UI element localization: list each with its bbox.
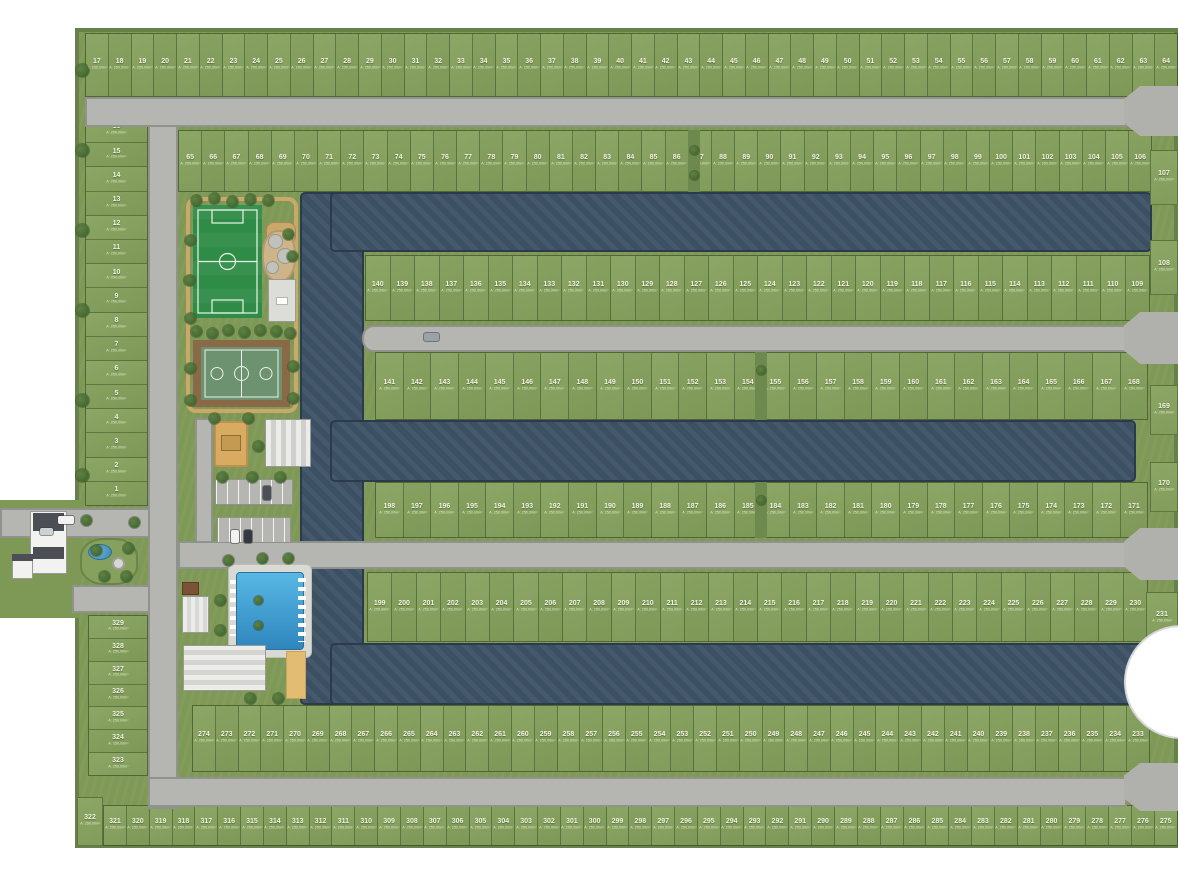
lot-area-label: A: 250,00m² — [513, 739, 533, 743]
lot-area-label: A: 250,00m² — [402, 826, 422, 830]
lot-number: 63 — [1139, 58, 1147, 66]
lot-area-label: A: 250,00m² — [223, 66, 243, 70]
lot-area-label: A: 250,00m² — [630, 826, 650, 830]
lot-area-label: A: 250,00m² — [516, 608, 536, 612]
lot-area-label: A: 250,00m² — [399, 739, 419, 743]
lot-area-label: A: 250,00m² — [392, 289, 412, 293]
lot-area-label: A: 250,00m² — [633, 66, 653, 70]
lot-area-label: A: 250,00m² — [923, 739, 943, 743]
lot-area-label: A: 250,00m² — [1013, 387, 1033, 391]
lot-number: 3 — [115, 438, 119, 446]
lot-number: 73 — [372, 154, 380, 162]
tree-icon — [76, 64, 89, 77]
tree-icon — [757, 366, 766, 375]
lot-area-label: A: 250,00m² — [1028, 608, 1048, 612]
lot-19: 19A: 250,00m² — [132, 34, 155, 96]
lot-number: 272 — [244, 731, 256, 739]
lot-area-label: A: 250,00m² — [353, 739, 373, 743]
lot-306: 306A: 250,00m² — [447, 806, 470, 845]
lot-17: 17A: 250,00m² — [86, 34, 109, 96]
lot-198: 198A: 250,00m² — [376, 483, 404, 537]
lot-area-label: A: 250,00m² — [695, 739, 715, 743]
tree-icon — [209, 193, 220, 204]
lot-number: 43 — [684, 58, 692, 66]
entrance-road-in — [0, 508, 150, 538]
lot-18: 18A: 250,00m² — [109, 34, 132, 96]
lot-66: 66A: 250,00m² — [202, 131, 225, 191]
lot-area-label: A: 250,00m² — [980, 289, 1000, 293]
lot-124: 124A: 250,00m² — [758, 256, 783, 320]
lot-285: 285A: 250,00m² — [926, 806, 949, 845]
lot-number: 143 — [439, 379, 451, 387]
lot-294: 294A: 250,00m² — [721, 806, 744, 845]
lot-167: 167A: 250,00m² — [1093, 353, 1121, 419]
lot-number: 184 — [770, 503, 782, 511]
lot-area-label: A: 250,00m² — [80, 822, 100, 826]
tree-icon — [129, 517, 140, 528]
lot-area-label: A: 250,00m² — [564, 66, 584, 70]
lot-110: 110A: 250,00m² — [1101, 256, 1126, 320]
lot-4: 4A: 250,00m² — [86, 409, 147, 433]
lot-88: 88A: 250,00m² — [712, 131, 735, 191]
lot-122: 122A: 250,00m² — [807, 256, 832, 320]
lot-281: 281A: 250,00m² — [1018, 806, 1041, 845]
lot-number: 148 — [576, 379, 588, 387]
lot-304: 304A: 250,00m² — [492, 806, 515, 845]
lot-number: 291 — [794, 818, 806, 826]
lot-area-label: A: 250,00m² — [356, 826, 376, 830]
lot-93: 93A: 250,00m² — [828, 131, 851, 191]
lot-number: 215 — [764, 600, 776, 608]
lot-number: 86 — [673, 154, 681, 162]
lot-number: 270 — [289, 731, 301, 739]
tree-icon — [76, 394, 89, 407]
lot-area-label: A: 250,00m² — [1019, 826, 1039, 830]
lot-area-label: A: 250,00m² — [906, 66, 926, 70]
lot-number: 263 — [449, 731, 461, 739]
lot-area-label: A: 250,00m² — [1084, 162, 1104, 166]
lot-271: 271A: 250,00m² — [261, 706, 284, 771]
lot-number: 216 — [788, 600, 800, 608]
lot-number: 285 — [931, 818, 943, 826]
bottom-row: 321A: 250,00m²320A: 250,00m²319A: 250,00… — [103, 805, 1178, 846]
lot-number: 13 — [113, 196, 121, 204]
lot-number: 65 — [186, 154, 194, 162]
lot-109: 109A: 250,00m² — [1126, 256, 1150, 320]
lot-number: 302 — [543, 818, 555, 826]
lot-number: 298 — [634, 818, 646, 826]
lot-number: 114 — [1009, 281, 1020, 289]
lot-317: 317A: 250,00m² — [195, 806, 218, 845]
lot-number: 224 — [983, 600, 995, 608]
lot-number: 128 — [666, 281, 678, 289]
lot-71: 71A: 250,00m² — [318, 131, 341, 191]
lot-area-label: A: 250,00m² — [968, 739, 988, 743]
lot-number: 195 — [466, 503, 478, 511]
lot-area-label: A: 250,00m² — [443, 608, 463, 612]
lot-area-label: A: 250,00m² — [1078, 289, 1098, 293]
lot-area-label: A: 250,00m² — [836, 826, 856, 830]
lot-area-label: A: 250,00m² — [108, 650, 128, 654]
lot-area-label: A: 250,00m² — [564, 289, 584, 293]
lot-number: 315 — [246, 818, 258, 826]
lot-number: 260 — [517, 731, 529, 739]
tree-icon — [690, 171, 699, 180]
lot-187: 187A: 250,00m² — [679, 483, 707, 537]
lot-20: 20A: 250,00m² — [154, 34, 177, 96]
lot-314: 314A: 250,00m² — [264, 806, 287, 845]
car-2 — [40, 528, 53, 535]
lot-191: 191A: 250,00m² — [569, 483, 597, 537]
tree-icon — [254, 621, 263, 630]
lot-area-label: A: 250,00m² — [638, 608, 658, 612]
lot-area-label: A: 250,00m² — [219, 826, 239, 830]
lot-number: 268 — [335, 731, 347, 739]
lot-area-label: A: 250,00m² — [470, 826, 490, 830]
lot-number: 56 — [980, 58, 988, 66]
lot-13: 13A: 250,00m² — [86, 192, 147, 216]
lot-158: 158A: 250,00m² — [845, 353, 873, 419]
lot-number: 133 — [543, 281, 555, 289]
lot-area-label: A: 250,00m² — [310, 826, 330, 830]
lot-number: 172 — [1100, 503, 1112, 511]
lot-area-label: A: 250,00m² — [613, 289, 633, 293]
lot-area-label: A: 250,00m² — [662, 289, 682, 293]
lot-170: 170A: 250,00m² — [1150, 462, 1178, 512]
lot-number: 296 — [680, 818, 692, 826]
lot-116: 116A: 250,00m² — [954, 256, 979, 320]
lot-number: 278 — [1091, 818, 1103, 826]
lot-number: 139 — [396, 281, 408, 289]
lot-area-label: A: 250,00m² — [308, 739, 328, 743]
lot-number: 85 — [650, 154, 658, 162]
lot-number: 25 — [275, 58, 283, 66]
lot-number: 38 — [571, 58, 579, 66]
lot-39: 39A: 250,00m² — [587, 34, 610, 96]
tree-icon — [76, 469, 89, 482]
lot-number: 140 — [372, 281, 384, 289]
lot-number: 6 — [115, 365, 119, 373]
culdesac-4 — [1124, 763, 1178, 811]
lot-36: 36A: 250,00m² — [518, 34, 541, 96]
lot-area-label: A: 250,00m² — [106, 470, 126, 474]
lot-area-label: A: 250,00m² — [269, 66, 289, 70]
plaza-pad — [268, 234, 283, 249]
lot-area-label: A: 250,00m² — [106, 180, 126, 184]
lot-number: 177 — [963, 503, 975, 511]
lot-area-label: A: 250,00m² — [722, 826, 742, 830]
lot-number: 318 — [178, 818, 190, 826]
lot-266: 266A: 250,00m² — [375, 706, 398, 771]
lot-area-label: A: 250,00m² — [852, 162, 872, 166]
lot-number: 46 — [753, 58, 761, 66]
lot-area-label: A: 250,00m² — [793, 511, 813, 515]
lot-area-label: A: 250,00m² — [857, 608, 877, 612]
lot-number: 281 — [1023, 818, 1035, 826]
lot-134: 134A: 250,00m² — [513, 256, 538, 320]
lot-321: 321A: 250,00m² — [104, 806, 127, 845]
lot-area-label: A: 250,00m² — [1037, 739, 1057, 743]
lot-area-label: A: 250,00m² — [958, 387, 978, 391]
lot-number: 95 — [881, 154, 889, 162]
lot-181: 181A: 250,00m² — [845, 483, 873, 537]
tree-icon — [76, 304, 89, 317]
street-3 — [178, 541, 1127, 569]
lot-area-label: A: 250,00m² — [504, 162, 524, 166]
tree-icon — [239, 327, 250, 338]
lot-210: 210A: 250,00m² — [636, 573, 660, 641]
sand-volleyball-court — [286, 651, 306, 699]
lot-252: 252A: 250,00m² — [694, 706, 717, 771]
lot-number: 183 — [797, 503, 809, 511]
lot-number: 238 — [1018, 731, 1030, 739]
lot-200: 200A: 250,00m² — [392, 573, 416, 641]
tree-icon — [263, 195, 274, 206]
tree-icon — [283, 229, 294, 240]
lot-number: 117 — [936, 281, 947, 289]
lot-area-label: A: 250,00m² — [833, 608, 853, 612]
tree-icon — [690, 146, 699, 155]
lot-area-label: A: 250,00m² — [1154, 411, 1174, 415]
lot-256: 256A: 250,00m² — [603, 706, 626, 771]
lot-number: 239 — [995, 731, 1007, 739]
lot-area-label: A: 250,00m² — [813, 826, 833, 830]
lot-272: 272A: 250,00m² — [239, 706, 262, 771]
lot-area-label: A: 250,00m² — [291, 66, 311, 70]
lot-area-label: A: 250,00m² — [945, 162, 965, 166]
lot-area-label: A: 250,00m² — [746, 66, 766, 70]
lot-area-label: A: 250,00m² — [1156, 66, 1176, 70]
lot-area-label: A: 250,00m² — [741, 739, 761, 743]
lot-number: 54 — [935, 58, 943, 66]
lot-242: 242A: 250,00m² — [922, 706, 945, 771]
lot-32: 32A: 250,00m² — [427, 34, 450, 96]
lot-number: 20 — [161, 58, 169, 66]
lot-area-label: A: 250,00m² — [370, 608, 390, 612]
lot-41: 41A: 250,00m² — [632, 34, 655, 96]
lot-number: 137 — [445, 281, 457, 289]
lot-100: 100A: 250,00m² — [990, 131, 1013, 191]
terrace-pads — [182, 582, 199, 595]
lot-138: 138A: 250,00m² — [415, 256, 440, 320]
tree-icon — [287, 251, 298, 262]
lot-area-label: A: 250,00m² — [600, 387, 620, 391]
lot-228: 228A: 250,00m² — [1075, 573, 1099, 641]
lot-number: 84 — [626, 154, 634, 162]
lot-number: 243 — [904, 731, 916, 739]
lot-14: 14A: 250,00m² — [86, 167, 147, 191]
lot-area-label: A: 250,00m² — [1014, 739, 1034, 743]
lot-area-label: A: 250,00m² — [491, 608, 511, 612]
lot-number: 320 — [132, 818, 144, 826]
green-divider-3 — [755, 482, 767, 538]
lot-area-label: A: 250,00m² — [379, 387, 399, 391]
lot-area-label: A: 250,00m² — [108, 696, 128, 700]
car-6 — [424, 333, 439, 341]
lot-area-label: A: 250,00m² — [517, 511, 537, 515]
car-1 — [58, 516, 74, 524]
lot-76: 76A: 250,00m² — [434, 131, 457, 191]
lot-area-label: A: 250,00m² — [407, 511, 427, 515]
lot-number: 287 — [886, 818, 898, 826]
lot-area-label: A: 250,00m² — [203, 162, 223, 166]
lot-number: 319 — [155, 818, 167, 826]
lot-253: 253A: 250,00m² — [671, 706, 694, 771]
lot-229: 229A: 250,00m² — [1099, 573, 1123, 641]
lot-area-label: A: 250,00m² — [379, 511, 399, 515]
lot-number: 256 — [608, 731, 620, 739]
lot-number: 275 — [1160, 818, 1172, 826]
lot-264: 264A: 250,00m² — [421, 706, 444, 771]
car-3 — [231, 530, 239, 543]
lot-316: 316A: 250,00m² — [218, 806, 241, 845]
lot-89: 89A: 250,00m² — [735, 131, 758, 191]
lot-number: 149 — [604, 379, 616, 387]
lot-10: 10A: 250,00m² — [86, 264, 147, 288]
lot-area-label: A: 250,00m² — [883, 66, 903, 70]
tree-icon — [245, 693, 256, 704]
lot-156: 156A: 250,00m² — [790, 353, 818, 419]
lot-area-label: A: 250,00m² — [683, 511, 703, 515]
tree-icon — [253, 441, 264, 452]
lot-number: 76 — [441, 154, 449, 162]
swimming-pool — [236, 572, 304, 650]
tree-icon — [223, 325, 234, 336]
lot-315: 315A: 250,00m² — [241, 806, 264, 845]
lot-area-label: A: 250,00m² — [1013, 511, 1033, 515]
lot-151: 151A: 250,00m² — [652, 353, 680, 419]
lot-number: 282 — [1000, 818, 1012, 826]
lot-79: 79A: 250,00m² — [503, 131, 526, 191]
lot-165: 165A: 250,00m² — [1038, 353, 1066, 419]
lot-area-label: A: 250,00m² — [106, 131, 126, 135]
lot-number: 50 — [844, 58, 852, 66]
lot-number: 153 — [714, 379, 726, 387]
lot-35: 35A: 250,00m² — [496, 34, 519, 96]
lot-312: 312A: 250,00m² — [310, 806, 333, 845]
lot-144: 144A: 250,00m² — [459, 353, 487, 419]
lot-number: 77 — [464, 154, 472, 162]
lot-area-label: A: 250,00m² — [1128, 739, 1148, 743]
lot-number: 106 — [1134, 154, 1146, 162]
lot-216: 216A: 250,00m² — [782, 573, 806, 641]
lot-number: 70 — [302, 154, 310, 162]
lot-number: 236 — [1064, 731, 1076, 739]
lot-137: 137A: 250,00m² — [440, 256, 465, 320]
lot-area-label: A: 250,00m² — [489, 511, 509, 515]
lot-number: 189 — [632, 503, 644, 511]
lot-area-label: A: 250,00m² — [1076, 608, 1096, 612]
lot-number: 205 — [520, 600, 532, 608]
tree-icon — [255, 325, 266, 336]
lot-area-label: A: 250,00m² — [1107, 162, 1127, 166]
lot-number: 112 — [1058, 281, 1069, 289]
lot-area-label: A: 250,00m² — [655, 66, 675, 70]
lot-area-label: A: 250,00m² — [955, 608, 975, 612]
lot-212: 212A: 250,00m² — [685, 573, 709, 641]
lot-28: 28A: 250,00m² — [336, 34, 359, 96]
lot-area-label: A: 250,00m² — [833, 289, 853, 293]
lot-number: 51 — [866, 58, 874, 66]
lot-number: 193 — [521, 503, 533, 511]
lot-area-label: A: 250,00m² — [106, 228, 126, 232]
lot-183: 183A: 250,00m² — [790, 483, 818, 537]
lot-104: 104A: 250,00m² — [1083, 131, 1106, 191]
plaza-pad — [266, 261, 279, 274]
lot-area-label: A: 250,00m² — [713, 162, 733, 166]
lot-number: 220 — [886, 600, 898, 608]
lot-number: 115 — [985, 281, 996, 289]
lot-area-label: A: 250,00m² — [473, 66, 493, 70]
lot-102: 102A: 250,00m² — [1036, 131, 1059, 191]
tree-icon — [227, 196, 238, 207]
lot-number: 72 — [348, 154, 356, 162]
lot-number: 67 — [233, 154, 241, 162]
clubhouse-annex — [182, 596, 209, 633]
lot-number: 188 — [659, 503, 671, 511]
lot-number: 111 — [1083, 281, 1094, 289]
lot-number: 83 — [603, 154, 611, 162]
lot-area-label: A: 250,00m² — [535, 739, 555, 743]
lot-126: 126A: 250,00m² — [709, 256, 734, 320]
lot-area-label: A: 250,00m² — [242, 826, 262, 830]
lot-area-label: A: 250,00m² — [898, 162, 918, 166]
lot-area-label: A: 250,00m² — [1110, 826, 1130, 830]
lot-287: 287A: 250,00m² — [881, 806, 904, 845]
lot-area-label: A: 250,00m² — [760, 608, 780, 612]
lot-number: 202 — [447, 600, 459, 608]
lot-number: 306 — [452, 818, 464, 826]
lot-area-label: A: 250,00m² — [517, 387, 537, 391]
lot-112: 112A: 250,00m² — [1052, 256, 1077, 320]
lot-269: 269A: 250,00m² — [307, 706, 330, 771]
lot-number: 108 — [1158, 260, 1170, 268]
lot-number: 14 — [113, 172, 121, 180]
lot-number: 168 — [1128, 379, 1140, 387]
lot-number: 210 — [642, 600, 654, 608]
lot-area-label: A: 250,00m² — [106, 446, 126, 450]
clubhouse-main — [183, 645, 266, 691]
lot-area-label: A: 250,00m² — [108, 673, 128, 677]
lot-307: 307A: 250,00m² — [424, 806, 447, 845]
lot-area-label: A: 250,00m² — [1124, 511, 1144, 515]
lot-number: 192 — [549, 503, 561, 511]
lot-50: 50A: 250,00m² — [837, 34, 860, 96]
lot-number: 42 — [662, 58, 670, 66]
lot-area-label: A: 250,00m² — [610, 66, 630, 70]
lot-number: 152 — [687, 379, 699, 387]
lot-area-label: A: 250,00m² — [481, 162, 501, 166]
lot-number: 7 — [115, 341, 119, 349]
lot-number: 173 — [1073, 503, 1085, 511]
lot-number: 146 — [521, 379, 533, 387]
lot-area-label: A: 250,00m² — [581, 739, 601, 743]
lot-number: 273 — [221, 731, 233, 739]
lot-number: 71 — [325, 154, 333, 162]
lot-261: 261A: 250,00m² — [489, 706, 512, 771]
lot-area-label: A: 250,00m² — [545, 387, 565, 391]
lot-area-label: A: 250,00m² — [881, 826, 901, 830]
lot-number: 277 — [1114, 818, 1126, 826]
lot-number: 313 — [292, 818, 304, 826]
lot-area-label: A: 250,00m² — [542, 66, 562, 70]
lot-number: 245 — [859, 731, 871, 739]
lot-206: 206A: 250,00m² — [539, 573, 563, 641]
lot-number: 18 — [116, 58, 124, 66]
lot-area-label: A: 250,00m² — [434, 511, 454, 515]
lot-area-label: A: 250,00m² — [655, 387, 675, 391]
lot-221: 221A: 250,00m² — [904, 573, 928, 641]
